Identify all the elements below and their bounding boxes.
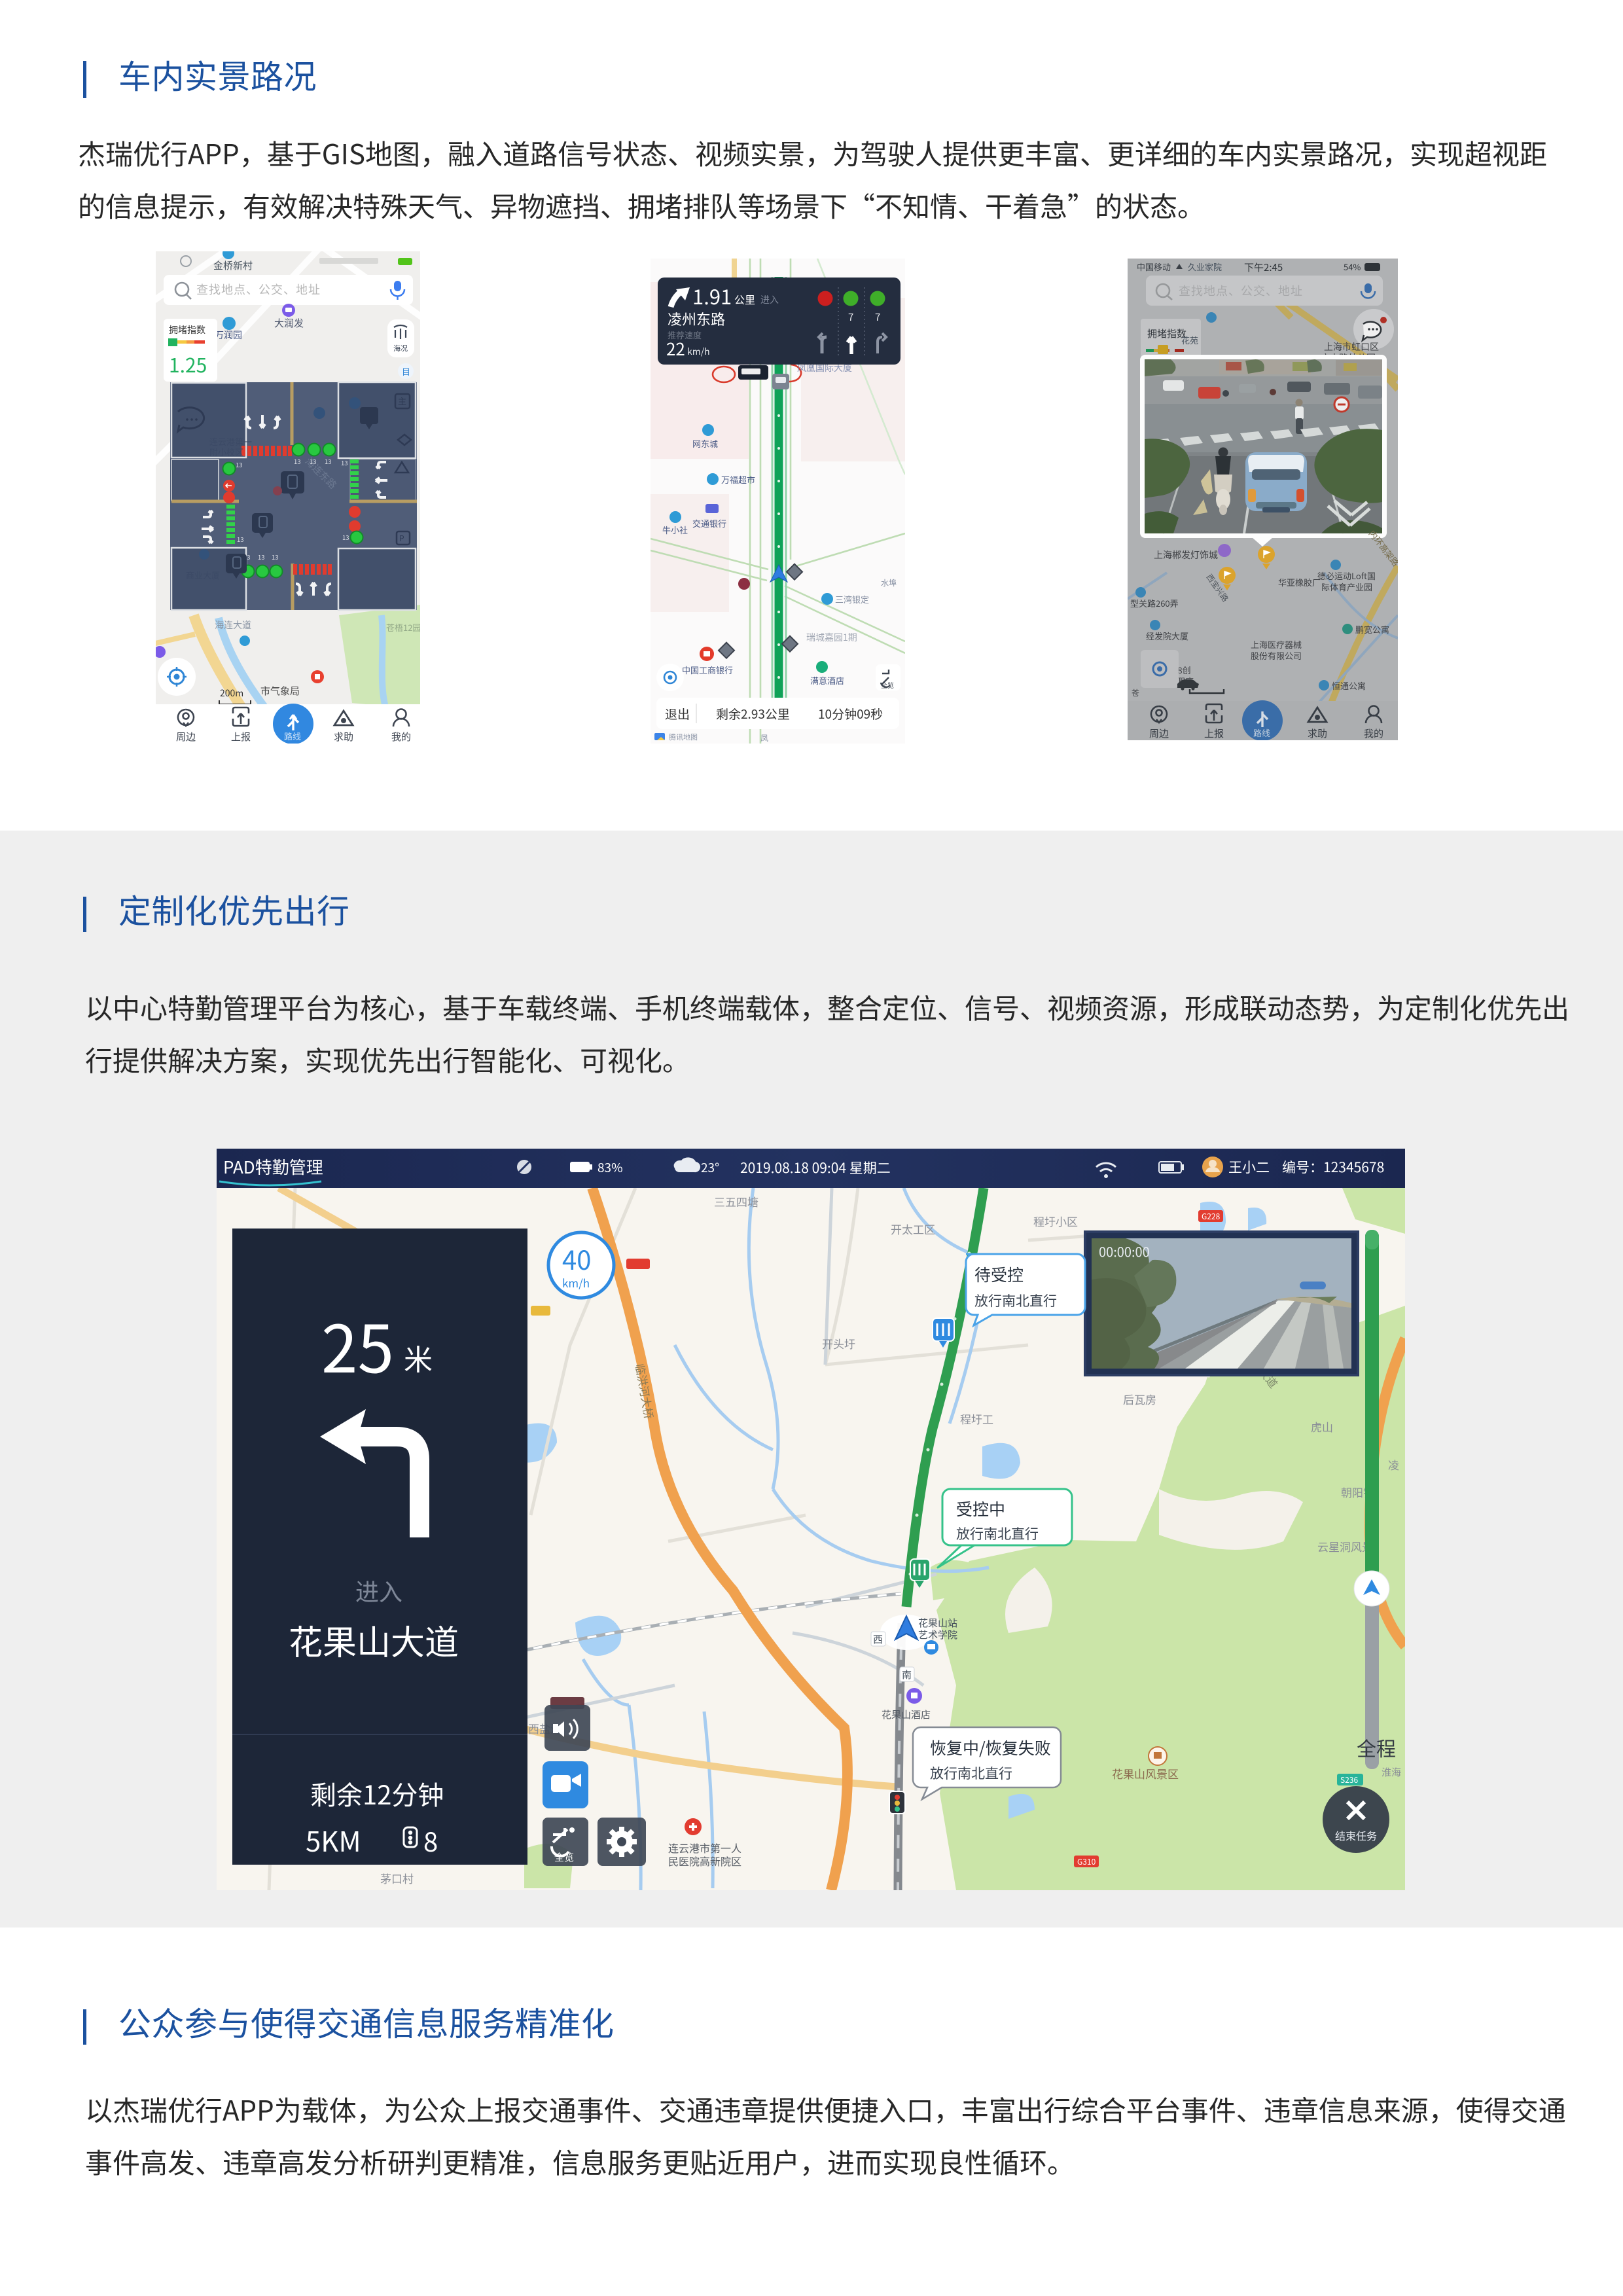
svg-text:股份有限公司: 股份有限公司 [1251,649,1302,662]
svg-text:附小校区: 附小校区 [209,446,243,458]
svg-text:1.91: 1.91 [692,281,732,310]
svg-text:开太工区: 开太工区 [891,1221,935,1237]
svg-text:艺术学院: 艺术学院 [918,1628,957,1641]
svg-text:花苑: 花苑 [1181,334,1198,346]
svg-text:经发院大厦: 经发院大厦 [1146,630,1188,642]
svg-text:查找地点、公交、地址: 查找地点、公交、地址 [1179,282,1303,299]
svg-text:恢复中/恢复失败: 恢复中/恢复失败 [930,1736,1051,1759]
svg-text:剩余2.93公里: 剩余2.93公里 [716,705,790,723]
svg-text:25: 25 [321,1297,394,1391]
svg-text:茅口村: 茅口村 [380,1870,414,1886]
svg-text:放行南北直行: 放行南北直行 [930,1763,1012,1783]
svg-text:瑞城嘉园1期: 瑞城嘉园1期 [806,631,857,644]
svg-text:00:00:00: 00:00:00 [1099,1242,1150,1261]
svg-text:路线: 路线 [1253,726,1270,739]
svg-text:拥堵指数: 拥堵指数 [169,323,205,336]
svg-text:13: 13 [341,458,348,467]
svg-text:凌州东路: 凌州东路 [668,308,725,329]
svg-text:上报: 上报 [231,730,251,744]
svg-text:市气象局: 市气象局 [260,684,300,698]
svg-text:P: P [399,533,404,544]
svg-text:程圩工: 程圩工 [960,1410,993,1427]
svg-text:鹏宽公寓: 鹏宽公寓 [1355,623,1389,636]
svg-text:23°: 23° [701,1158,719,1176]
svg-text:王小二: 王小二 [1228,1157,1270,1177]
svg-text:G310: G310 [1077,1856,1096,1867]
svg-text:三五四塘: 三五四塘 [714,1193,758,1210]
svg-text:进入: 进入 [760,293,779,306]
svg-text:22: 22 [666,336,685,361]
svg-text:待受控: 待受控 [974,1263,1024,1286]
svg-text:我的: 我的 [1364,726,1383,740]
svg-text:网东城: 网东城 [692,437,718,450]
svg-text:淮海: 淮海 [1382,1765,1401,1779]
svg-text:商业大厦: 商业大厦 [186,569,220,581]
svg-text:上报: 上报 [1204,726,1224,740]
svg-text:西: 西 [873,1632,883,1646]
svg-text:结束任务: 结束任务 [1335,1827,1377,1843]
svg-text:花果山大道: 花果山大道 [289,1615,459,1664]
svg-text:恒通公寓: 恒通公寓 [1332,679,1366,692]
svg-text:放行南北直行: 放行南北直行 [956,1524,1039,1543]
svg-text:40: 40 [562,1240,591,1278]
svg-text:求助: 求助 [334,730,353,744]
svg-text:目: 目 [402,365,410,378]
svg-text:200m: 200m [220,687,243,700]
svg-text:交通银行: 交通银行 [692,517,726,529]
svg-text:进入: 进入 [355,1573,402,1607]
svg-text:水埠: 水埠 [881,577,897,588]
svg-text:万福超市: 万福超市 [721,473,755,486]
svg-text:主: 主 [398,395,406,407]
svg-text:km/h: km/h [687,345,710,358]
svg-text:南: 南 [902,1668,912,1681]
svg-text:凤: 凤 [760,732,768,744]
svg-text:后瓦房: 后瓦房 [1123,1391,1156,1407]
svg-text:7: 7 [848,310,853,324]
svg-text:大润发: 大润发 [274,316,304,330]
svg-text:上海郴发灯饰城: 上海郴发灯饰城 [1154,548,1218,562]
svg-text:海况: 海况 [393,343,408,353]
svg-text:退出: 退出 [665,705,690,723]
svg-text:8: 8 [423,1821,438,1859]
svg-text:求助: 求助 [1308,726,1327,740]
svg-text:苍: 苍 [1132,687,1139,698]
svg-text:13: 13 [342,533,349,542]
svg-text:13: 13 [237,535,244,544]
svg-text:路线: 路线 [284,730,301,742]
svg-text:1.25: 1.25 [169,350,207,378]
svg-text:虎山: 虎山 [1311,1418,1333,1435]
svg-text:民医院高新院区: 民医院高新院区 [668,1853,741,1869]
svg-text:云星洞风景: 云星洞风景 [1317,1538,1373,1554]
svg-text:花果山酒店: 花果山酒店 [882,1708,931,1721]
svg-text:10分钟09秒: 10分钟09秒 [818,705,883,723]
svg-text:13: 13 [310,457,317,466]
svg-text:开头圩: 开头圩 [822,1335,855,1352]
svg-text:万润园: 万润园 [215,329,242,342]
svg-text:腾讯地图: 腾讯地图 [669,732,698,742]
svg-text:13: 13 [236,460,243,469]
svg-text:三湾银定: 三湾银定 [835,593,869,605]
svg-text:凌: 凌 [1388,1456,1399,1473]
svg-text:周边: 周边 [176,730,196,744]
svg-text:编号：12345678: 编号：12345678 [1282,1157,1384,1177]
svg-text:全览: 全览 [554,1850,574,1864]
svg-text:13: 13 [272,552,279,562]
svg-text:放行南北直行: 放行南北直行 [974,1291,1057,1310]
svg-text:G228: G228 [1202,1211,1221,1222]
svg-text:米: 米 [404,1336,433,1378]
svg-text:花果山风景区: 花果山风景区 [1112,1765,1179,1782]
svg-text:2019.08.18 09:04 星期二: 2019.08.18 09:04 星期二 [740,1158,891,1177]
svg-text:PAD特勤管理: PAD特勤管理 [223,1155,323,1179]
svg-text:下午2:45: 下午2:45 [1244,260,1283,274]
svg-text:华亚橡胶厂: 华亚橡胶厂 [1278,576,1321,588]
svg-text:我的: 我的 [391,730,411,744]
svg-text:久业家院: 久业家院 [1188,260,1222,273]
svg-text:满意酒店: 满意酒店 [810,674,844,687]
svg-text:全程: 全程 [1357,1733,1396,1762]
svg-text:际体育产业园: 际体育产业园 [1321,581,1372,593]
svg-text:海连大道: 海连大道 [215,619,251,632]
svg-text:周边: 周边 [1149,726,1169,740]
svg-text:全览: 全览 [881,680,894,690]
svg-text:苍梧12园: 苍梧12园 [386,621,420,634]
svg-text:拥堵指数: 拥堵指数 [1147,327,1186,340]
svg-text:型关路260弄: 型关路260弄 [1130,597,1179,609]
svg-text:公里: 公里 [734,291,755,307]
svg-text:83%: 83% [597,1158,623,1176]
svg-text:金桥新村: 金桥新村 [213,259,253,272]
svg-text:5KM: 5KM [306,1820,361,1860]
svg-text:7: 7 [875,310,880,324]
svg-text:剩余12分钟: 剩余12分钟 [310,1774,444,1812]
svg-text:牛小社: 牛小社 [662,524,688,536]
svg-text:中国移动: 中国移动 [1137,260,1171,273]
svg-text:54%: 54% [1344,260,1361,273]
svg-text:中国工商银行: 中国工商银行 [682,664,733,676]
svg-text:查找地点、公交、地址: 查找地点、公交、地址 [196,281,321,298]
svg-text:受控中: 受控中 [956,1497,1005,1520]
svg-text:13: 13 [258,552,265,562]
svg-text:13: 13 [294,457,301,466]
svg-text:km/h: km/h [562,1274,590,1291]
svg-text:13: 13 [325,457,332,466]
svg-text:程圩小区: 程圩小区 [1033,1213,1078,1229]
svg-text:S236: S236 [1340,1774,1358,1785]
